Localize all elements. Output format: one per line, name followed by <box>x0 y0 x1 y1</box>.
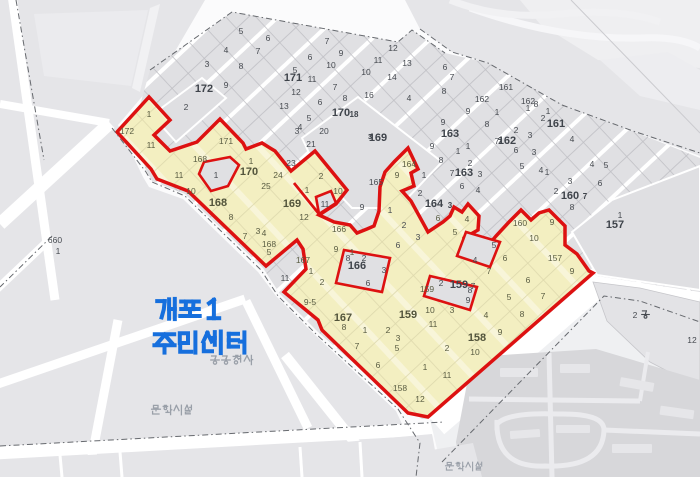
svg-text:9: 9 <box>441 117 446 127</box>
svg-text:167: 167 <box>296 255 310 265</box>
svg-text:5: 5 <box>507 292 512 302</box>
svg-text:6: 6 <box>308 52 313 62</box>
svg-text:1: 1 <box>422 170 427 180</box>
svg-text:7: 7 <box>487 266 492 276</box>
svg-text:163: 163 <box>455 167 473 179</box>
svg-text:10: 10 <box>529 233 539 243</box>
svg-text:8: 8 <box>229 212 234 222</box>
svg-text:6: 6 <box>598 178 603 188</box>
svg-text:172: 172 <box>120 126 134 136</box>
svg-text:163: 163 <box>441 128 459 140</box>
svg-text:5: 5 <box>453 227 458 237</box>
svg-text:10: 10 <box>361 67 371 77</box>
svg-text:11: 11 <box>443 370 452 380</box>
svg-text:161: 161 <box>547 118 565 130</box>
svg-text:6: 6 <box>443 62 448 72</box>
svg-text:170: 170 <box>240 166 258 178</box>
svg-text:5: 5 <box>520 161 525 171</box>
svg-text:2: 2 <box>402 220 407 230</box>
svg-text:167: 167 <box>334 312 352 324</box>
svg-text:157: 157 <box>548 253 562 263</box>
svg-text:12: 12 <box>687 335 697 345</box>
svg-text:8: 8 <box>343 93 348 103</box>
svg-text:4: 4 <box>570 134 575 144</box>
svg-text:170: 170 <box>332 107 350 119</box>
svg-text:3: 3 <box>568 176 573 186</box>
svg-text:3: 3 <box>528 130 533 140</box>
svg-text:20: 20 <box>319 126 329 136</box>
svg-text:168: 168 <box>209 197 227 209</box>
svg-text:7: 7 <box>243 231 248 241</box>
svg-text:12: 12 <box>299 212 309 222</box>
svg-text:4: 4 <box>590 159 595 169</box>
svg-text:9: 9 <box>466 106 471 116</box>
svg-text:166: 166 <box>348 260 366 272</box>
svg-text:2: 2 <box>418 188 423 198</box>
svg-text:1: 1 <box>56 246 61 256</box>
svg-text:9: 9 <box>224 80 229 90</box>
svg-text:165: 165 <box>369 177 383 187</box>
svg-text:11: 11 <box>308 74 317 84</box>
svg-text:5: 5 <box>267 247 272 257</box>
svg-text:9: 9 <box>334 244 339 254</box>
svg-text:1: 1 <box>423 362 428 372</box>
svg-text:7: 7 <box>541 291 546 301</box>
svg-text:4: 4 <box>465 214 470 224</box>
svg-text:3: 3 <box>396 333 401 343</box>
svg-text:13: 13 <box>402 58 412 68</box>
svg-text:5: 5 <box>604 160 609 170</box>
svg-text:3: 3 <box>478 169 483 179</box>
svg-text:6: 6 <box>460 181 465 191</box>
svg-text:6: 6 <box>526 275 531 285</box>
svg-text:2: 2 <box>633 310 638 320</box>
svg-text:11: 11 <box>147 140 156 150</box>
svg-text:9: 9 <box>430 141 435 151</box>
svg-text:158: 158 <box>468 332 486 344</box>
svg-text:21: 21 <box>306 139 316 149</box>
svg-text:171: 171 <box>219 136 233 146</box>
svg-text:11: 11 <box>321 199 330 209</box>
svg-text:1: 1 <box>388 205 393 215</box>
svg-text:166: 166 <box>332 224 346 234</box>
svg-text:8: 8 <box>570 202 575 212</box>
svg-text:10: 10 <box>326 60 336 70</box>
svg-text:161: 161 <box>499 82 513 92</box>
svg-text:2: 2 <box>184 102 189 112</box>
svg-text:11: 11 <box>175 170 184 180</box>
svg-text:1: 1 <box>466 141 471 151</box>
svg-text:3: 3 <box>532 147 537 157</box>
svg-text:3: 3 <box>256 226 261 236</box>
svg-text:7: 7 <box>471 281 476 291</box>
svg-text:2: 2 <box>319 171 324 181</box>
svg-text:164: 164 <box>425 198 444 210</box>
svg-text:1: 1 <box>495 107 500 117</box>
svg-text:7: 7 <box>498 139 502 146</box>
svg-text:7: 7 <box>325 36 330 46</box>
svg-text:1: 1 <box>545 167 550 177</box>
svg-text:4: 4 <box>262 228 267 238</box>
svg-text:3: 3 <box>205 59 210 69</box>
svg-text:14: 14 <box>387 72 397 82</box>
svg-text:5: 5 <box>239 26 244 36</box>
svg-text:660: 660 <box>48 235 62 245</box>
svg-text:3: 3 <box>450 305 455 315</box>
svg-text:12: 12 <box>388 43 398 53</box>
svg-text:9-5: 9-5 <box>304 297 317 307</box>
svg-text:3: 3 <box>416 232 421 242</box>
svg-text:1: 1 <box>249 156 254 166</box>
svg-text:8: 8 <box>442 86 447 96</box>
svg-text:23: 23 <box>286 158 296 168</box>
svg-text:6: 6 <box>396 240 401 250</box>
svg-text:6: 6 <box>266 33 271 43</box>
svg-text:164: 164 <box>402 159 416 169</box>
svg-text:10: 10 <box>186 186 196 196</box>
svg-text:7: 7 <box>583 192 588 201</box>
svg-text:6: 6 <box>436 213 441 223</box>
svg-text:10: 10 <box>470 347 480 357</box>
svg-text:1: 1 <box>526 103 531 113</box>
svg-text:159: 159 <box>399 309 417 321</box>
svg-text:4: 4 <box>476 185 481 195</box>
svg-text:8: 8 <box>520 309 525 319</box>
svg-text:2: 2 <box>386 325 391 335</box>
svg-text:9: 9 <box>395 170 400 180</box>
svg-text:8: 8 <box>439 155 444 165</box>
svg-text:11: 11 <box>374 55 383 65</box>
svg-text:12: 12 <box>415 394 425 404</box>
svg-text:8: 8 <box>485 119 490 129</box>
svg-text:2: 2 <box>439 278 444 288</box>
svg-text:4: 4 <box>407 93 412 103</box>
svg-text:1: 1 <box>214 170 219 180</box>
svg-text:7: 7 <box>256 46 261 56</box>
svg-text:6: 6 <box>503 253 508 263</box>
svg-text:4: 4 <box>484 310 489 320</box>
svg-text:1: 1 <box>363 325 368 335</box>
svg-text:12: 12 <box>291 87 301 97</box>
svg-text:25: 25 <box>261 181 271 191</box>
svg-text:160: 160 <box>513 218 527 228</box>
svg-text:11: 11 <box>429 319 438 329</box>
svg-text:9: 9 <box>550 217 555 227</box>
svg-text:7: 7 <box>355 341 360 351</box>
svg-text:3: 3 <box>368 134 372 141</box>
svg-text:18: 18 <box>350 110 359 119</box>
svg-text:4: 4 <box>539 165 544 175</box>
svg-text:5: 5 <box>395 343 400 353</box>
svg-text:6: 6 <box>366 278 371 288</box>
svg-text:9: 9 <box>498 327 503 337</box>
svg-text:2: 2 <box>445 343 450 353</box>
svg-text:1: 1 <box>147 109 152 119</box>
svg-text:6: 6 <box>376 360 381 370</box>
svg-text:13: 13 <box>279 101 289 111</box>
svg-text:1: 1 <box>456 146 461 156</box>
svg-text:160: 160 <box>561 190 579 202</box>
svg-text:169: 169 <box>283 198 301 210</box>
svg-text:1: 1 <box>350 247 355 257</box>
svg-text:159: 159 <box>450 279 468 291</box>
svg-text:2: 2 <box>320 277 325 287</box>
svg-text:4: 4 <box>473 255 478 265</box>
svg-text:16: 16 <box>364 90 374 100</box>
svg-text:172: 172 <box>195 83 213 95</box>
svg-text:3: 3 <box>382 265 387 275</box>
svg-text:9: 9 <box>466 295 471 305</box>
svg-text:10: 10 <box>425 305 435 315</box>
svg-text:162: 162 <box>475 94 489 104</box>
svg-text:1: 1 <box>305 185 310 195</box>
svg-text:2: 2 <box>554 186 559 196</box>
svg-text:4: 4 <box>224 45 229 55</box>
svg-text:5: 5 <box>492 240 497 250</box>
svg-text:2: 2 <box>541 113 546 123</box>
svg-text:2: 2 <box>514 125 519 135</box>
svg-text:3: 3 <box>295 126 300 136</box>
svg-text:1: 1 <box>546 106 551 116</box>
svg-text:1: 1 <box>309 266 314 276</box>
svg-text:9: 9 <box>360 202 365 212</box>
svg-text:7: 7 <box>333 82 338 92</box>
svg-text:158: 158 <box>393 383 407 393</box>
svg-text:7: 7 <box>450 72 455 82</box>
svg-text:9: 9 <box>570 266 575 276</box>
svg-text:24: 24 <box>273 170 283 180</box>
svg-text:10: 10 <box>333 186 343 196</box>
svg-text:8: 8 <box>239 61 244 71</box>
svg-text:11: 11 <box>281 273 290 283</box>
svg-text:9: 9 <box>339 48 344 58</box>
svg-text:3: 3 <box>448 201 453 210</box>
svg-text:157: 157 <box>606 219 624 231</box>
svg-text:171: 171 <box>284 72 302 84</box>
svg-text:6: 6 <box>318 97 323 107</box>
svg-text:5: 5 <box>307 113 312 123</box>
svg-text:159: 159 <box>420 284 434 294</box>
svg-text:168: 168 <box>193 154 207 164</box>
